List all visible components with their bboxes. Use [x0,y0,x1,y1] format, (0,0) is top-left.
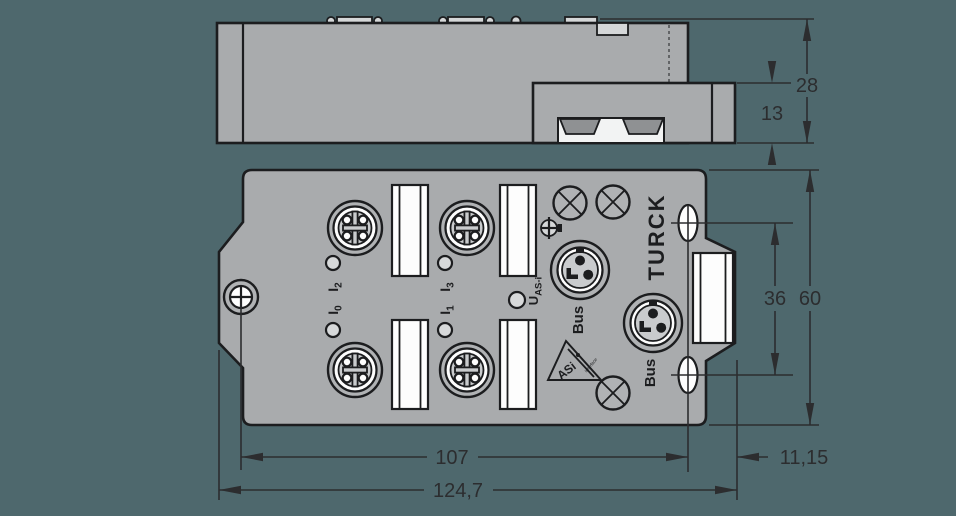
arrowhead [715,486,737,494]
led-indicator [438,256,452,270]
cable-channel [392,320,428,409]
dim-hole-spacing-label: 107 [435,447,468,469]
arrowhead [737,453,759,461]
cable-channel [392,185,428,276]
knockout-icon [597,377,630,410]
knockout-icon [597,186,630,219]
front-view: I2 I3 I0 I1 [219,170,828,502]
din-rail-foot [560,119,600,134]
arrowhead [771,223,779,245]
arrowhead [806,170,814,192]
arrowhead [806,403,814,425]
dim-11-15: 11,15 [737,447,828,469]
m12-connector-icon [328,201,382,255]
m12-connector-icon [440,343,494,397]
arrowhead [666,453,688,461]
dim-13: 13 [737,61,791,165]
arrowhead [803,19,811,41]
address-plate [693,253,733,343]
dim-overall-height-label: 60 [799,288,821,310]
page-background: 28 13 [0,0,956,516]
dim-total-height-label: 28 [796,75,818,97]
led-indicator [326,323,340,337]
led-indicator [326,256,340,270]
arrowhead [241,453,263,461]
dim-slot-edge-offset-label: 11,15 [780,447,829,469]
arrowhead [219,486,241,494]
arrowhead [768,61,776,83]
side-view: 28 13 [217,17,818,166]
din-rail-foot [623,119,663,134]
dim-bracket-height-label: 13 [761,103,783,125]
m12-connector-icon [328,343,382,397]
knockout-icon [554,187,587,220]
led-indicator [509,292,525,308]
dim-slot-spacing-label: 36 [764,288,786,310]
dim-overall-width-label: 124,7 [433,480,483,502]
bus-label: Bus [570,306,587,334]
led-indicator [438,323,452,337]
connector-notch [597,23,628,35]
cable-channel [500,320,536,409]
m8-bus-connector-icon [624,294,682,352]
cable-channel [500,185,536,276]
drawing-canvas: 28 13 [0,0,956,516]
arrowhead [803,121,811,143]
m8-bus-connector-icon [551,241,609,299]
bus-label: Bus [642,359,659,387]
m12-connector-icon [440,201,494,255]
brand-logo: TURCK [644,194,669,281]
arrowhead [771,353,779,375]
arrowhead [768,143,776,165]
